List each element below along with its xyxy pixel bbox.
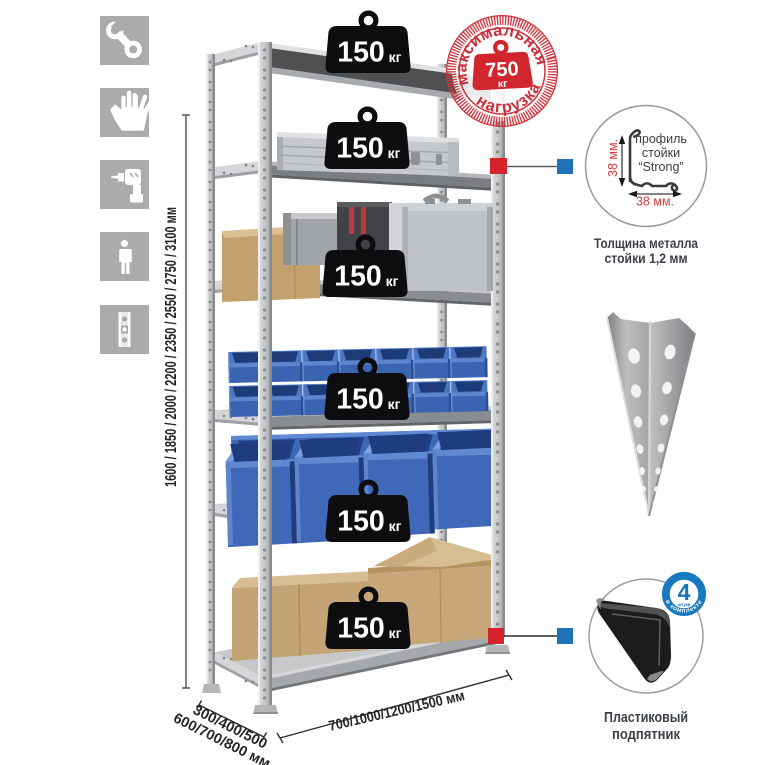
svg-text:подпятник: подпятник bbox=[612, 727, 681, 743]
svg-text:Пластиковый: Пластиковый bbox=[604, 710, 688, 726]
svg-text:1600 / 1850 / 2000 / 2200 / 23: 1600 / 1850 / 2000 / 2200 / 2350 / 2550 … bbox=[163, 207, 180, 487]
svg-text:кг: кг bbox=[498, 78, 509, 91]
svg-text:штуки: штуки bbox=[678, 602, 691, 607]
svg-text:38 мм.: 38 мм. bbox=[606, 139, 620, 177]
svg-text:38 мм.: 38 мм. bbox=[636, 195, 674, 209]
svg-text:“Strong”: “Strong” bbox=[638, 160, 683, 174]
svg-text:стойки 1,2 мм: стойки 1,2 мм bbox=[605, 251, 688, 266]
svg-text:профиль: профиль bbox=[635, 132, 687, 146]
svg-text:стойки: стойки bbox=[642, 146, 680, 160]
svg-text:Толщина металла: Толщина металла bbox=[594, 236, 698, 251]
